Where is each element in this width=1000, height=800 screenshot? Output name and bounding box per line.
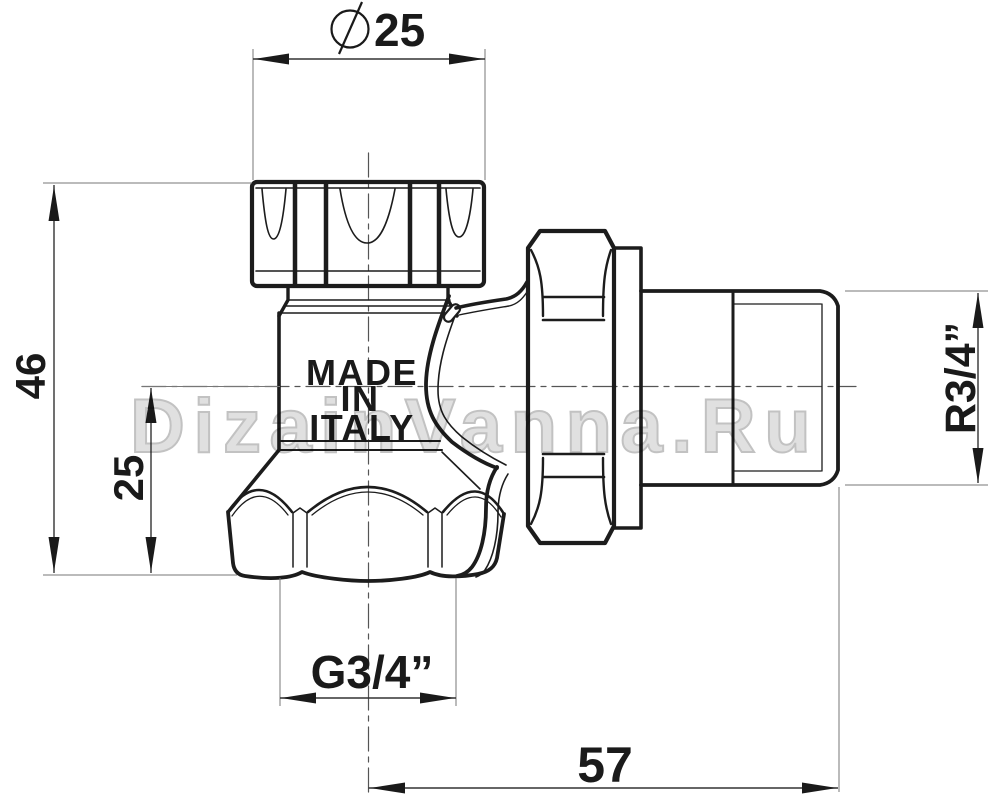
svg-text:57: 57	[577, 737, 633, 793]
svg-text:DizainVanna.Ru: DizainVanna.Ru	[130, 384, 819, 469]
svg-text:46: 46	[7, 353, 54, 400]
svg-text:G3/4”: G3/4”	[311, 646, 434, 698]
svg-text:25: 25	[374, 4, 425, 56]
svg-text:R3/4”: R3/4”	[937, 322, 985, 434]
